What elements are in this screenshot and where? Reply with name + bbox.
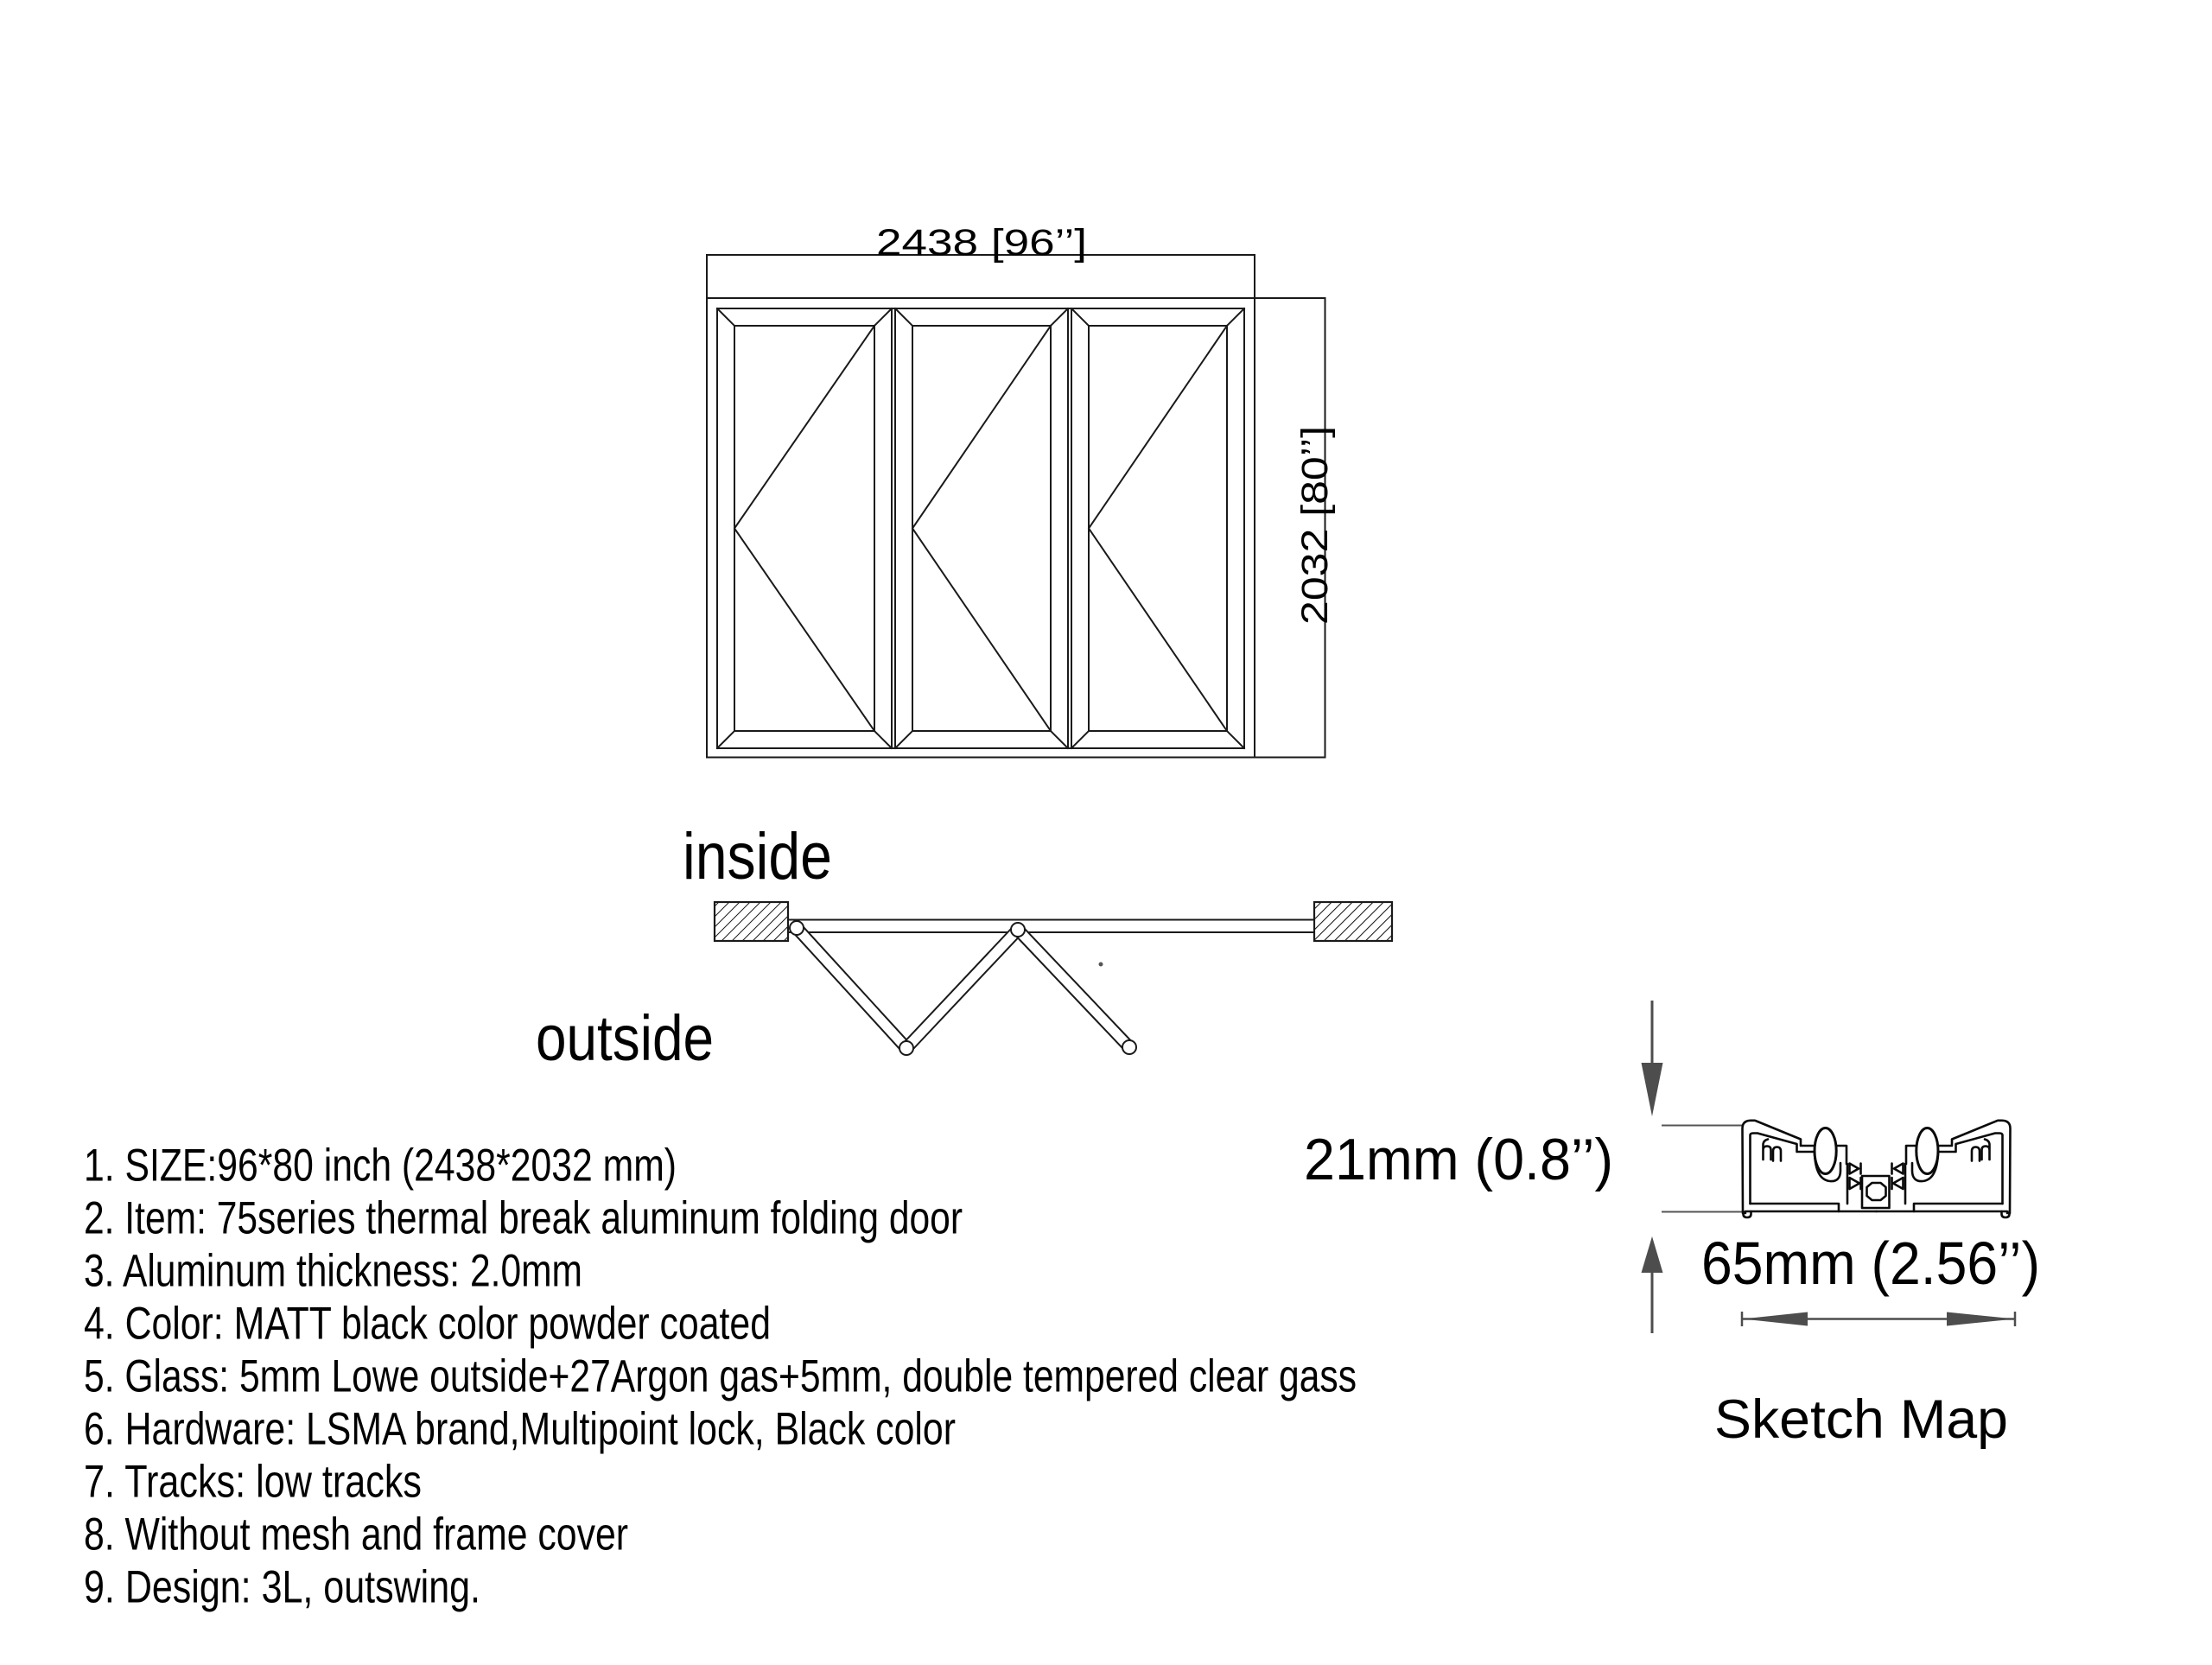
svg-text:outside: outside [536,1002,714,1074]
svg-text:9. Design: 3L, outswing.: 9. Design: 3L, outswing. [84,1562,480,1613]
svg-text:2. Item: 75series thermal brea: 2. Item: 75series thermal break aluminum… [84,1193,963,1244]
svg-text:65mm (2.56’’): 65mm (2.56’’) [1701,1230,2040,1297]
svg-text:7. Tracks: low tracks: 7. Tracks: low tracks [84,1457,422,1508]
svg-text:6. Hardware: LSMA brand,Multip: 6. Hardware: LSMA brand,Multipoint lock,… [84,1404,956,1455]
svg-text:5. Glass: 5mm Lowe outside+27A: 5. Glass: 5mm Lowe outside+27Argon gas+5… [84,1351,1357,1402]
svg-text:8. Without mesh and frame cove: 8. Without mesh and frame cover [84,1509,628,1560]
svg-text:3. Aluminum thickness: 2.0mm: 3. Aluminum thickness: 2.0mm [84,1246,582,1297]
svg-text:inside: inside [683,820,832,893]
svg-text:4. Color: MATT black color pow: 4. Color: MATT black color powder coated [84,1299,771,1350]
svg-text:2032 [80’’]: 2032 [80’’] [1294,426,1336,625]
svg-text:1. SIZE:96*80 inch (2438*2032: 1. SIZE:96*80 inch (2438*2032 mm) [84,1141,677,1192]
svg-text:2438 [96’’]: 2438 [96’’] [876,222,1087,264]
svg-text:Sketch Map: Sketch Map [1714,1389,2008,1450]
svg-text:21mm (0.8’’): 21mm (0.8’’) [1304,1127,1613,1192]
